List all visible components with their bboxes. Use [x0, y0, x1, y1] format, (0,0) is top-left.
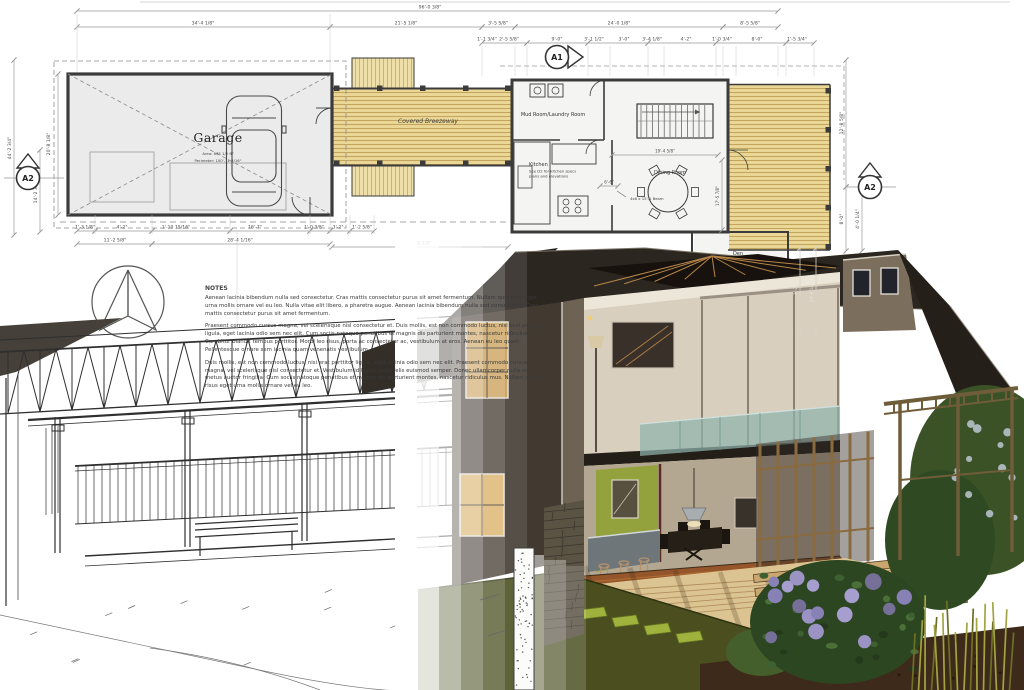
section-marker-a1: A1 — [546, 46, 584, 69]
breezeway-plan — [332, 58, 512, 196]
wall-sconce — [588, 316, 593, 321]
garage-area: Area: 635 1/2 ft² — [202, 151, 234, 156]
dim-label: 96'-0 3/8" — [419, 5, 442, 11]
dim-label: 20'-8 1/8" — [46, 133, 52, 156]
dim-label: 14'-0 1/2" — [809, 282, 814, 303]
dim-label: 1'-0 3/4" — [712, 37, 732, 43]
dim-label: 1'-1 3/4" — [477, 37, 497, 43]
bench-sketch — [195, 518, 298, 556]
architectural-composite: Garage Area: 635 1/2 ft² Perimeter: 100'… — [0, 0, 1024, 690]
dim-label: 1'-5 3/4" — [787, 37, 807, 43]
dim-label: 8'-0" — [752, 37, 763, 43]
beam-note: 4x6 x 15'-1 Beam — [630, 196, 664, 201]
dim-label: 2'-5 5/8" — [499, 37, 519, 43]
dim-label: 3'-2" — [333, 225, 344, 231]
dim-label: 1'-3 1/8" — [75, 225, 95, 231]
marker-a2-right-label: A2 — [864, 183, 876, 192]
marker-a2-left-label: A2 — [22, 174, 34, 183]
dim-label: 4'-2" — [681, 37, 692, 43]
notes-paragraph-2: Praesent commodo cursus magna, vel scele… — [205, 323, 545, 354]
dim-label: 2'-2" — [793, 285, 798, 295]
dining-label: Dining Room — [654, 170, 686, 176]
porch-posts-sketch — [52, 403, 311, 553]
dim-label: 24'-0 1/8" — [608, 21, 631, 27]
notes-block: NOTES Aenean lacinia bibendum nulla sed … — [205, 285, 545, 396]
dim-label: 21'-5 1/8" — [395, 21, 418, 27]
notes-paragraph-3: Duis mollis, est non commodo luctus, nis… — [205, 360, 545, 391]
dim-label: 12'-8 5/8" — [839, 112, 845, 135]
kitchen-label: Kitchen — [529, 162, 548, 168]
dim-label: 3'-4 1/8" — [642, 37, 662, 43]
gable-window — [881, 268, 898, 294]
dim-label: 6'-6" — [604, 180, 614, 185]
dim-label: 3'-5 5/8" — [488, 21, 508, 27]
dim-label: 1'-10 15/16" — [162, 225, 191, 231]
dim-label: 34'-4 1/8" — [192, 21, 215, 27]
dim-label: 44'-2 3/4" — [7, 137, 13, 160]
garage-perimeter: Perimeter: 100'-11 3/16" — [195, 158, 242, 163]
dim-label: 3'-0" — [619, 37, 630, 43]
breezeway-label: Covered Breezeway — [398, 118, 458, 125]
dim-label: 11'-2 5/8" — [104, 238, 127, 244]
notes-paragraph-1: Aenean lacinia bibendum nulla sed consec… — [205, 295, 545, 318]
dim-label: 9'-0" — [552, 37, 563, 43]
dim-label: 17'-5 7/8" — [715, 186, 720, 206]
dim-label: 28'-4 1/16" — [227, 238, 253, 244]
roof-right-porch — [898, 250, 1014, 398]
gable-window — [853, 270, 870, 296]
dim-label: 3'-1 1/2" — [584, 37, 604, 43]
dim-label: 4'-2" — [117, 225, 128, 231]
dim-label: 4'-0 1/4" — [855, 209, 861, 229]
mudroom-label: Mud Room/Laundry Room — [521, 112, 586, 118]
section-marker-a2-left: A2 — [4, 154, 64, 190]
marker-a1-label: A1 — [551, 53, 563, 62]
dining-table-plan — [648, 172, 688, 212]
dim-label: 8'-5 5/8" — [740, 21, 760, 27]
dim-label: 8'-0" — [839, 214, 845, 225]
wall-art — [735, 498, 757, 528]
dim-label: 19'-4 5/8" — [655, 149, 675, 154]
dim-label: 1'-0 3/8" — [304, 225, 324, 231]
garage-label: Garage — [193, 130, 242, 145]
notes-heading: NOTES — [205, 285, 545, 292]
dim-label: 16'-7" — [248, 225, 262, 231]
section-marker-a2-right: A2 — [846, 163, 896, 199]
dim-label: 1'-2 5/8" — [352, 225, 372, 231]
kitchen-note-2: plans and elevations — [529, 174, 568, 179]
